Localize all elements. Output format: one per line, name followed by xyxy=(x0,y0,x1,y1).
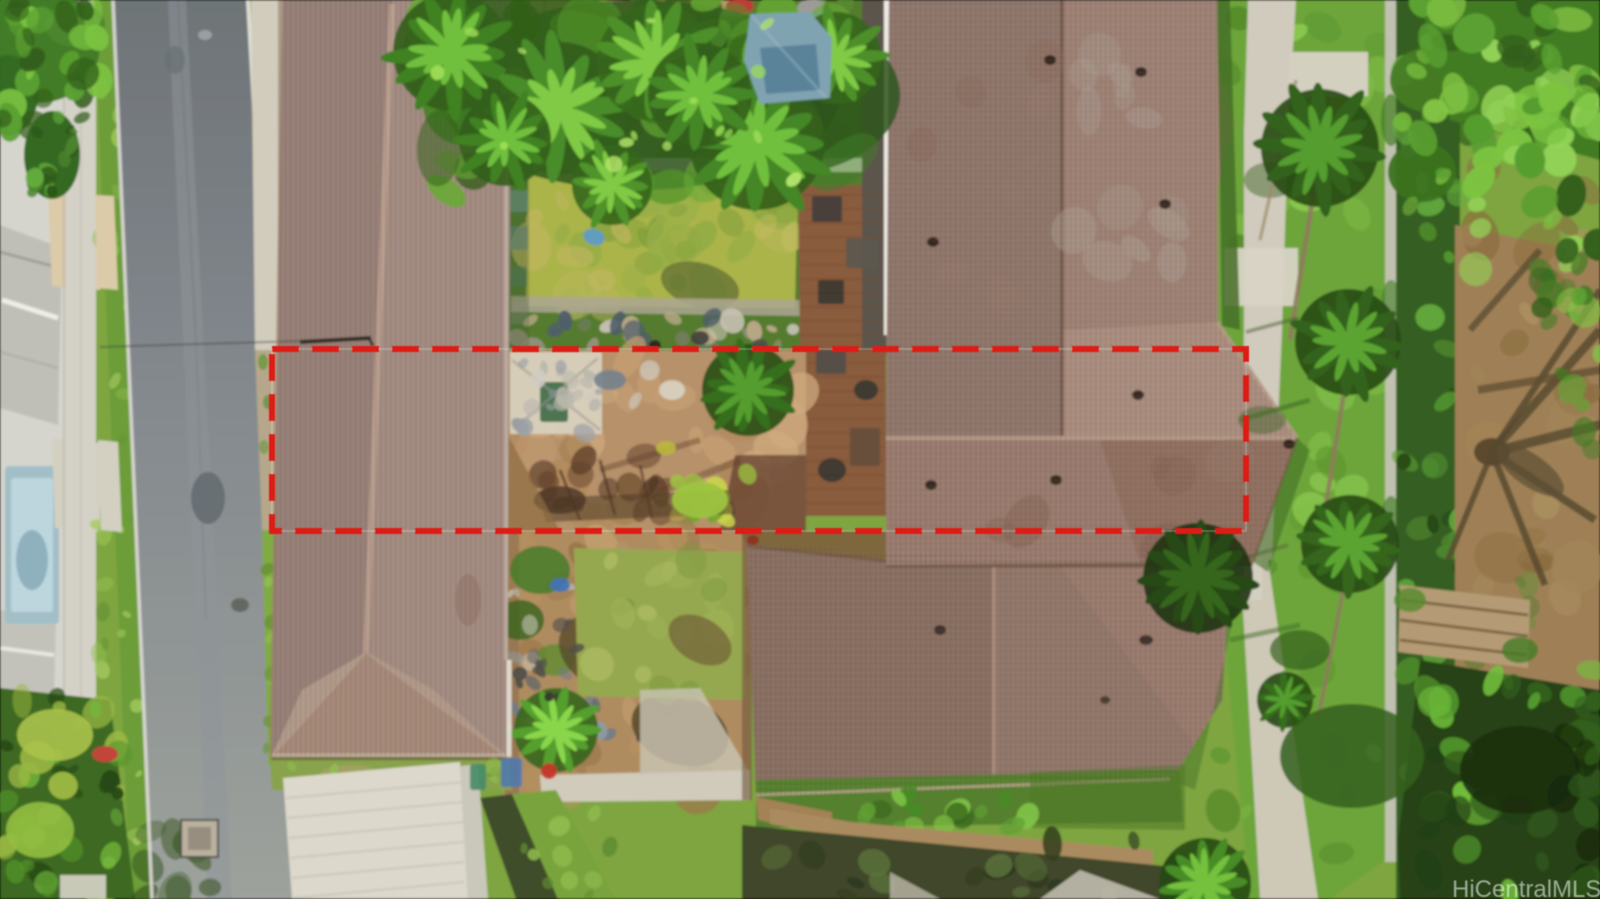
svg-text:HiCentralMLS: HiCentralMLS xyxy=(1452,876,1600,899)
